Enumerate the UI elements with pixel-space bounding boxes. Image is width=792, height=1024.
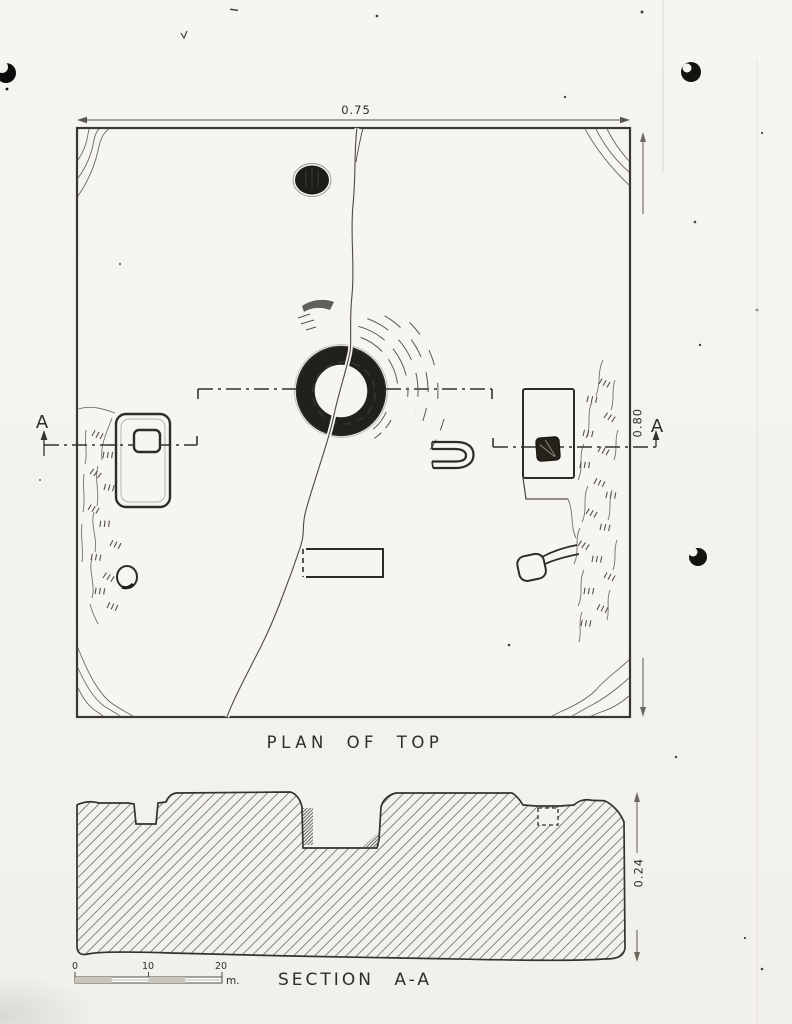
plan-width-dimension: 0.75 — [300, 103, 412, 117]
scale-unit: m. — [226, 975, 246, 987]
scale-tick-10: 10 — [140, 961, 156, 972]
plan-width-dimension-line — [77, 117, 630, 123]
plan-height-dimension: 0.80 — [631, 410, 644, 438]
section-depth-dimension: 0.24 — [632, 860, 645, 888]
punch-hole-artifact-right-top — [681, 62, 701, 82]
plan-view — [41, 117, 660, 717]
drill-hole-top — [293, 164, 331, 197]
socket-wall-shading-right — [362, 832, 379, 848]
section-view — [75, 792, 640, 983]
card-edge-lines — [663, 0, 757, 1024]
punch-hole-artifact-left — [0, 61, 16, 90]
section-title: SECTION A-A — [230, 970, 480, 990]
section-marker-a-left: A — [33, 412, 51, 433]
scale-bar — [75, 972, 222, 983]
punch-hole-artifact-right-mid — [689, 548, 708, 567]
mortise-hole — [536, 437, 561, 462]
socket-wall-shading-left — [302, 808, 313, 845]
scale-tick-20: 20 — [213, 961, 229, 972]
hidden-mortise-outline — [538, 808, 558, 825]
section-marker-a-right: A — [648, 416, 666, 437]
scale-tick-0: 0 — [67, 961, 83, 972]
scanned-drawing-page: 0.75 0.80 A A PLAN OF TOP 0.24 SECTION A… — [0, 0, 792, 1024]
plan-title: PLAN OF TOP — [240, 733, 470, 752]
drawing-canvas — [0, 0, 792, 1024]
left-recess-inner-square — [134, 430, 160, 452]
